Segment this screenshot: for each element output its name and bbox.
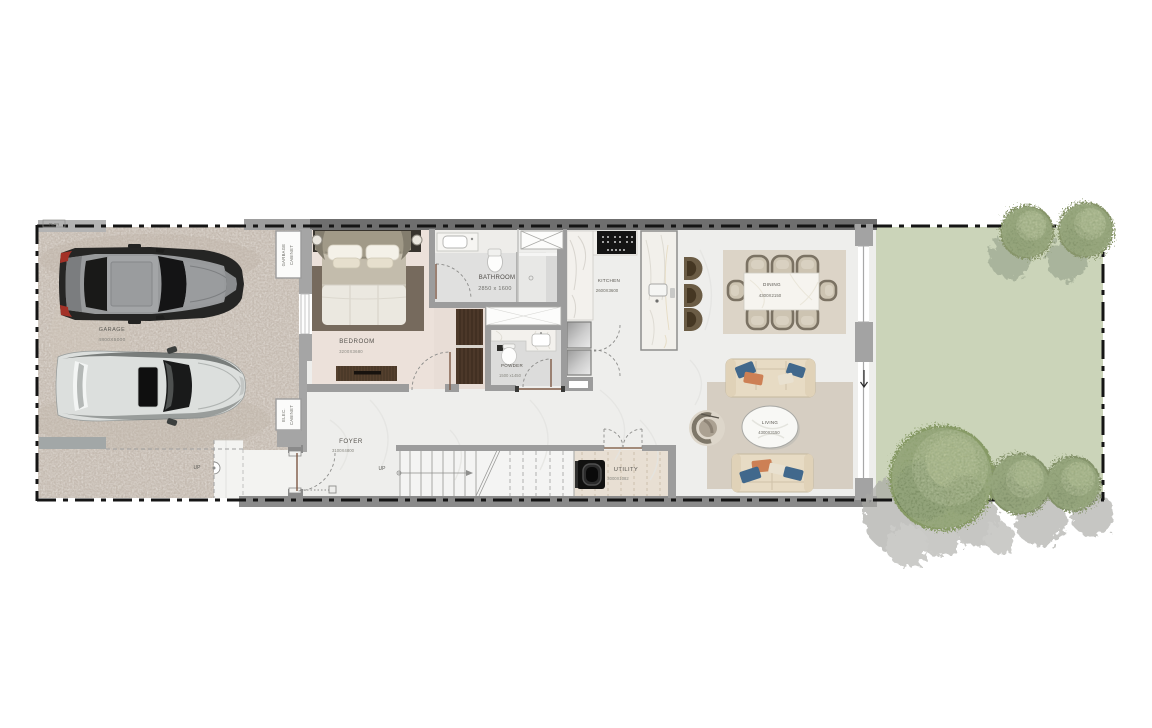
svg-text:CABINET: CABINET [289,245,294,265]
svg-text:GARAGE: GARAGE [99,327,126,333]
svg-text:CABINET: CABINET [289,405,294,425]
svg-text:4800X5000: 4800X5000 [98,337,125,343]
svg-text:PLAN: PLAN [49,222,60,227]
svg-text:LIVING: LIVING [762,420,778,425]
svg-text:UTILITY: UTILITY [614,467,638,473]
svg-text:2600X3600: 2600X3600 [596,288,619,293]
svg-text:POWDER: POWDER [501,363,524,368]
svg-text:BATHROOM: BATHROOM [479,275,516,281]
svg-text:3200X3680: 3200X3680 [339,349,363,354]
svg-text:3000X1082: 3000X1082 [607,476,629,481]
svg-text:3100X4800: 3100X4800 [332,448,355,453]
svg-text:4300X3150: 4300X3150 [758,430,780,435]
svg-text:2850 x 1600: 2850 x 1600 [478,286,512,292]
svg-text:DINING: DINING [763,282,781,287]
svg-text:FOYER: FOYER [339,438,363,445]
svg-text:UP: UP [379,466,387,472]
svg-text:KITCHEN: KITCHEN [598,278,620,283]
svg-text:UP: UP [194,465,202,471]
svg-text:ELEC.: ELEC. [281,408,286,422]
svg-text:GARBAGE: GARBAGE [281,244,286,267]
svg-text:BEDROOM: BEDROOM [339,338,374,345]
svg-text:4300X2150: 4300X2150 [759,293,782,298]
svg-text:1500 x1450: 1500 x1450 [499,373,522,378]
